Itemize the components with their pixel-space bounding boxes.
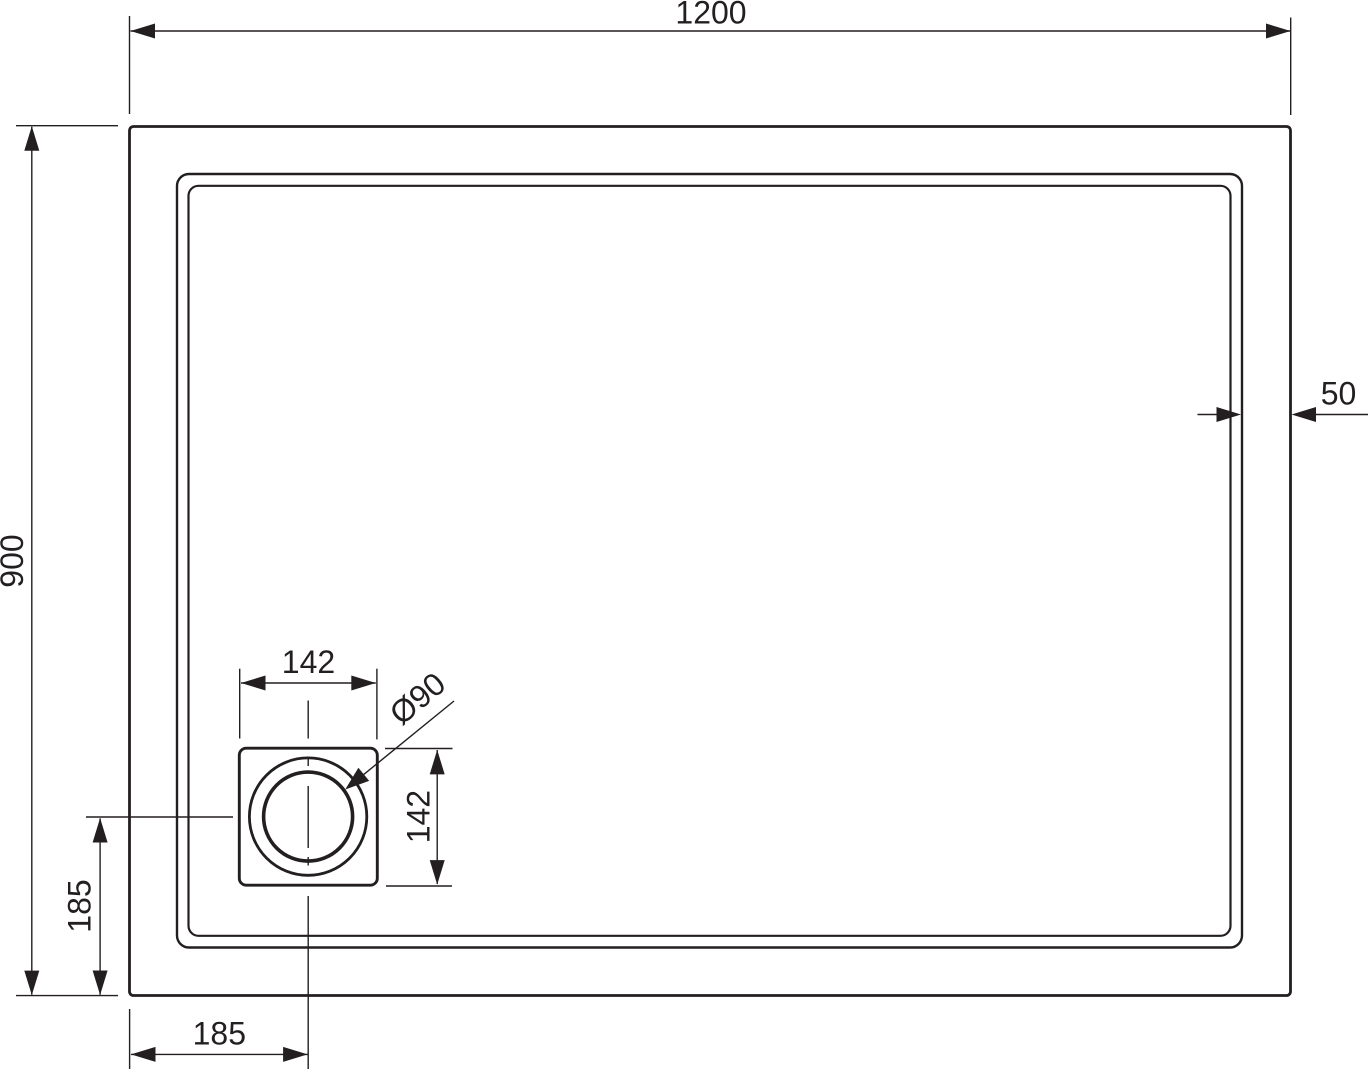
svg-text:142: 142 xyxy=(282,644,335,680)
svg-text:142: 142 xyxy=(401,790,437,843)
svg-text:185: 185 xyxy=(193,1015,246,1051)
svg-text:900: 900 xyxy=(0,534,30,587)
svg-text:Ø90: Ø90 xyxy=(383,665,452,731)
svg-text:1200: 1200 xyxy=(675,0,746,31)
svg-text:50: 50 xyxy=(1321,376,1357,412)
svg-text:185: 185 xyxy=(62,879,98,932)
